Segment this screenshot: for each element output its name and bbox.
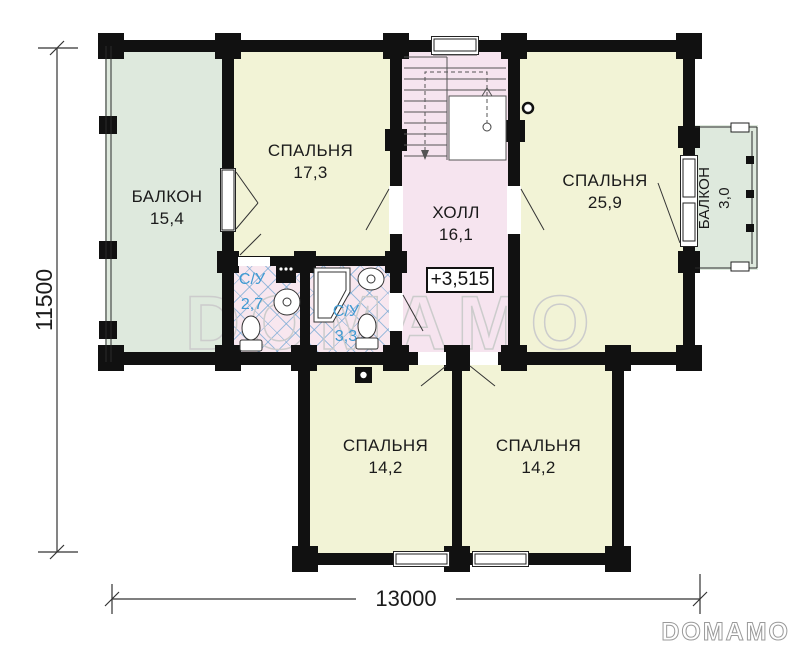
log-post: [291, 345, 317, 371]
room-label-bedroom-14a: СПАЛЬНЯ 14,2: [313, 435, 458, 479]
log-post: [385, 129, 407, 151]
room-name: СПАЛЬНЯ: [313, 435, 458, 457]
room-area: 14,2: [313, 457, 458, 479]
room-label-bedroom-25: СПАЛЬНЯ 25,9: [530, 170, 680, 214]
log-post: [503, 120, 525, 142]
room-label-wc-33: С/У 3,3: [320, 300, 372, 350]
log-post: [294, 251, 316, 273]
room-label-wc-27: С/У 2,7: [226, 268, 278, 318]
log-post: [215, 33, 241, 59]
room-area: 15,4: [115, 208, 219, 230]
room-area: 17,3: [238, 162, 383, 184]
room-name: С/У: [226, 268, 278, 293]
log-post: [215, 345, 241, 371]
log-post: [605, 345, 631, 371]
balcony-door-bedroom-17: [220, 168, 236, 232]
door-opening-bedroom-14b: [470, 352, 498, 365]
wall: [612, 352, 624, 565]
log-post: [99, 241, 117, 259]
log-post: [383, 33, 409, 59]
log-post: [676, 33, 702, 59]
floor-plan: DOMAMO: [0, 0, 800, 655]
log-post: [605, 546, 631, 572]
room-label-bedroom-14b: СПАЛЬНЯ 14,2: [466, 435, 611, 479]
log-post: [678, 251, 700, 273]
window-bedroom-14b: [472, 551, 529, 567]
room-area: 25,9: [530, 192, 680, 214]
brand-logo: DOMAMO: [600, 618, 790, 647]
door-opening-hall-wc33: [389, 293, 403, 331]
door-opening-bedroom17-wc27: [238, 257, 270, 266]
wall: [298, 352, 310, 565]
window-stairs: [431, 36, 479, 55]
log-post: [99, 116, 117, 134]
room-name: СПАЛЬНЯ: [530, 170, 680, 192]
room-name: СПАЛЬНЯ: [466, 435, 611, 457]
room-area: 2,7: [226, 293, 278, 318]
log-post: [98, 345, 124, 371]
log-post: [383, 345, 409, 371]
log-post: [444, 345, 470, 371]
elevation-mark: +3,515: [426, 267, 494, 293]
dimension-horizontal: 13000: [356, 586, 456, 612]
room-label-bedroom-17: СПАЛЬНЯ 17,3: [238, 140, 383, 184]
door-opening-bedroom-14a: [418, 352, 446, 365]
room-area: 3,0: [715, 143, 735, 253]
room-area: 16,1: [398, 224, 514, 246]
room-area: 3,3: [320, 325, 372, 350]
log-post: [501, 345, 527, 371]
log-post: [99, 321, 117, 339]
log-post: [501, 33, 527, 59]
room-name: С/У: [320, 300, 372, 325]
log-post: [385, 251, 407, 273]
room-label-balcony-left: БАЛКОН 15,4: [115, 186, 219, 230]
window-bedroom-14a: [393, 551, 450, 567]
dimension-vertical: 11500: [31, 240, 57, 360]
room-label-balcony-right: БАЛКОН 3,0: [695, 143, 741, 253]
log-post: [98, 33, 124, 59]
room-name: БАЛКОН: [115, 186, 219, 208]
room-area: 14,2: [466, 457, 611, 479]
room-name: СПАЛЬНЯ: [238, 140, 383, 162]
room-label-hall: ХОЛЛ 16,1: [398, 202, 514, 246]
log-post: [676, 345, 702, 371]
room-name: БАЛКОН: [695, 143, 715, 253]
room-name: ХОЛЛ: [398, 202, 514, 224]
wall: [300, 264, 310, 358]
log-post: [292, 546, 318, 572]
